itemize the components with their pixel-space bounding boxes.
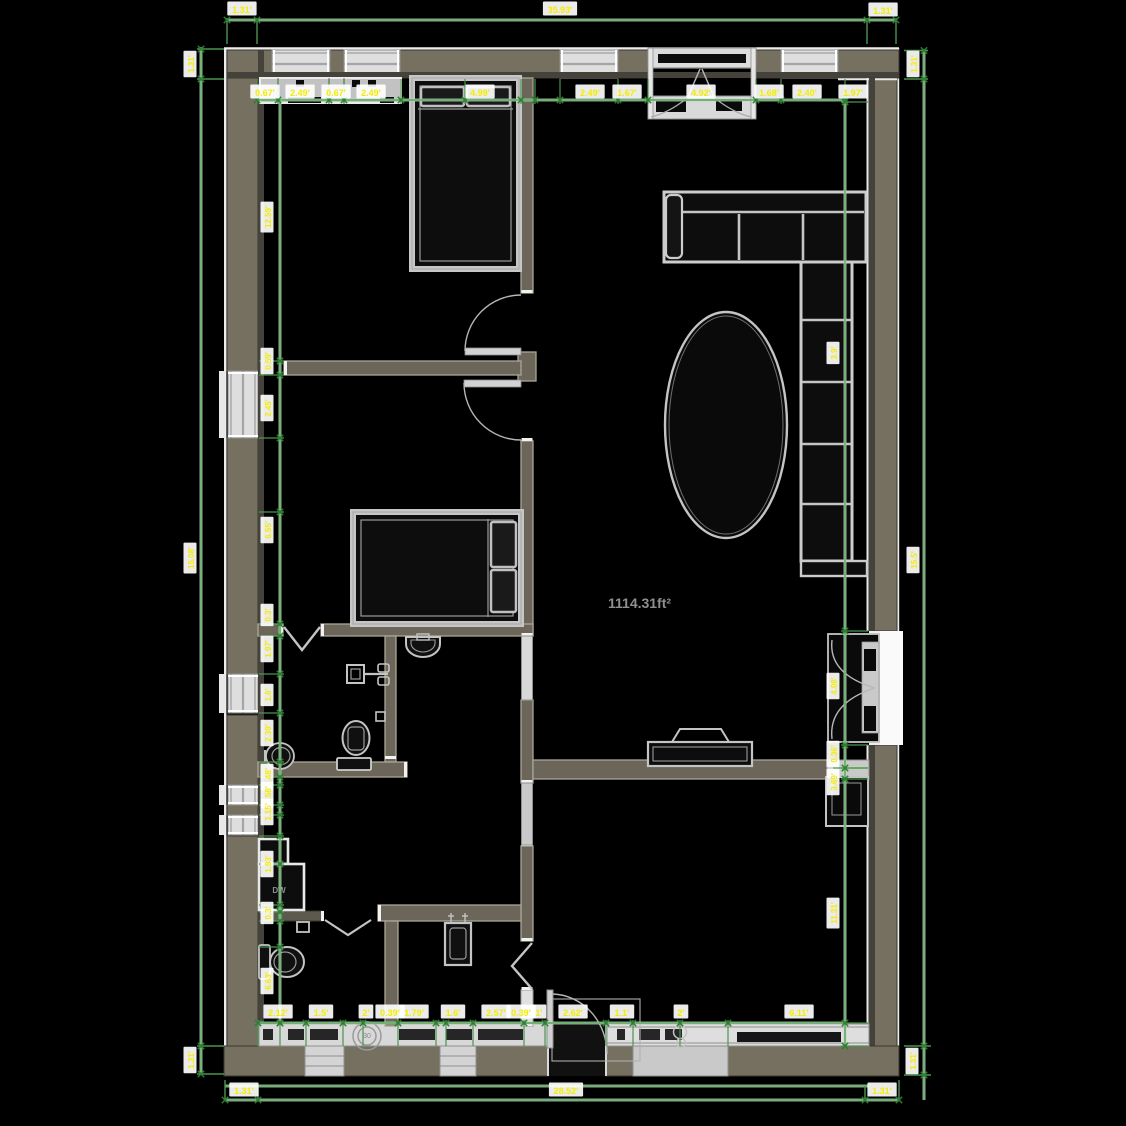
- svg-text:3.69': 3.69': [830, 773, 839, 791]
- svg-text:12.59': 12.59': [264, 206, 273, 228]
- svg-text:35.93': 35.93': [548, 5, 573, 15]
- svg-text:1.31': 1.31': [872, 1086, 892, 1096]
- svg-text:1.97': 1.97': [843, 88, 863, 98]
- svg-text:2.45': 2.45': [264, 399, 273, 417]
- svg-text:1.1': 1.1': [615, 1008, 630, 1018]
- svg-text:1.15': 1.15': [264, 803, 273, 821]
- svg-text:1.97': 1.97': [264, 640, 273, 658]
- svg-text:2.49': 2.49': [580, 88, 600, 98]
- svg-text:1.68': 1.68': [759, 88, 779, 98]
- svg-text:15.5': 15.5': [910, 551, 919, 569]
- svg-text:1': 1': [535, 1008, 542, 1018]
- svg-text:1.31': 1.31': [910, 55, 919, 73]
- svg-text:28.52': 28.52': [554, 1086, 579, 1096]
- svg-text:4.99': 4.99': [470, 88, 490, 98]
- svg-text:1.5': 1.5': [314, 1008, 329, 1018]
- svg-text:1.31': 1.31': [232, 5, 252, 15]
- svg-text:0.59': 0.59': [264, 352, 273, 370]
- svg-text:0.39': 0.39': [511, 1008, 531, 1018]
- svg-text:0.67': 0.67': [255, 88, 275, 98]
- svg-text:1.79': 1.79': [404, 1008, 424, 1018]
- svg-text:2.12': 2.12': [268, 1008, 288, 1018]
- svg-text:1.31': 1.31': [187, 55, 196, 73]
- svg-text:0.3': 0.3': [264, 906, 273, 919]
- svg-text:1.6': 1.6': [446, 1008, 461, 1018]
- svg-text:2.57': 2.57': [486, 1008, 506, 1018]
- svg-text:0.36': 0.36': [830, 745, 839, 763]
- svg-text:2.62': 2.62': [563, 1008, 583, 1018]
- svg-text:6.63': 6.63': [264, 972, 273, 990]
- svg-text:2': 2': [677, 1008, 684, 1018]
- svg-text:4.08': 4.08': [830, 677, 839, 695]
- svg-text:1.93': 1.93': [264, 855, 273, 873]
- svg-text:4.92': 4.92': [691, 88, 711, 98]
- svg-text:2.49': 2.49': [361, 88, 381, 98]
- svg-text:2.39': 2.39': [264, 724, 273, 742]
- svg-text:6.55': 6.55': [264, 521, 273, 539]
- svg-text:0.67': 0.67': [326, 88, 346, 98]
- svg-text:1.31': 1.31': [187, 1051, 196, 1069]
- svg-text:1.31': 1.31': [234, 1086, 254, 1096]
- svg-text:2': 2': [362, 1008, 369, 1018]
- svg-text:0.39': 0.39': [380, 1008, 400, 1018]
- svg-text:0.3': 0.3': [264, 608, 273, 621]
- svg-text:1.31': 1.31': [909, 1052, 918, 1070]
- svg-text:1.31': 1.31': [873, 6, 893, 16]
- svg-text:3.9': 3.9': [830, 346, 839, 359]
- svg-text:30: 30: [363, 1033, 371, 1040]
- svg-text:11.31': 11.31': [830, 902, 839, 924]
- svg-text:15.08': 15.08': [187, 547, 196, 569]
- svg-text:1.67': 1.67': [617, 88, 637, 98]
- svg-text:2.49': 2.49': [290, 88, 310, 98]
- svg-text:1114.31ft²: 1114.31ft²: [608, 595, 671, 611]
- svg-text:1.6': 1.6': [264, 688, 273, 701]
- svg-text:2.40': 2.40': [797, 88, 817, 98]
- svg-text:6.11': 6.11': [789, 1008, 808, 1018]
